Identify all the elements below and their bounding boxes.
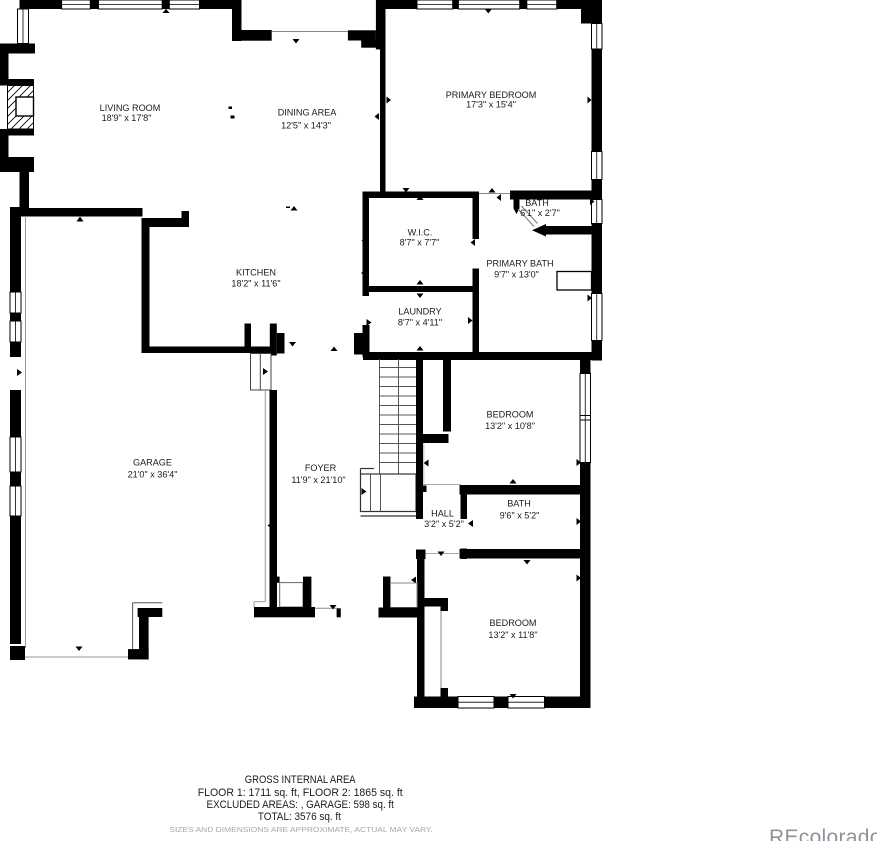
svg-text:8'7" x 7'7": 8'7" x 7'7" — [400, 237, 440, 247]
svg-text:6'1" x 2'7": 6'1" x 2'7" — [520, 208, 560, 218]
svg-text:KITCHEN: KITCHEN — [236, 267, 276, 277]
svg-text:18'2" x 11'6": 18'2" x 11'6" — [231, 278, 280, 288]
svg-text:BATH: BATH — [507, 498, 531, 508]
svg-text:FLOOR 1: 1711 sq. ft, FLOOR 2:: FLOOR 1: 1711 sq. ft, FLOOR 2: 1865 sq. … — [198, 787, 404, 799]
svg-text:PRIMARY BEDROOM: PRIMARY BEDROOM — [446, 90, 537, 100]
svg-text:BEDROOM: BEDROOM — [490, 618, 537, 628]
svg-text:DINING AREA: DINING AREA — [278, 108, 338, 118]
svg-text:BATH: BATH — [525, 198, 549, 208]
svg-text:W.I.C.: W.I.C. — [408, 227, 433, 237]
svg-text:13'2" x 10'8": 13'2" x 10'8" — [485, 421, 535, 431]
svg-text:12'5" x 14'3": 12'5" x 14'3" — [281, 121, 331, 131]
svg-text:8'7" x 4'11": 8'7" x 4'11" — [398, 318, 442, 328]
svg-text:GARAGE: GARAGE — [133, 457, 172, 467]
svg-text:9'6" x 5'2": 9'6" x 5'2" — [500, 511, 540, 521]
svg-text:9'7" x 13'0": 9'7" x 13'0" — [494, 270, 539, 280]
svg-text:LIVING ROOM: LIVING ROOM — [100, 103, 161, 113]
svg-text:3'2" x 5'2": 3'2" x 5'2" — [424, 519, 464, 529]
svg-text:18'9" x 17'8": 18'9" x 17'8" — [102, 113, 152, 123]
svg-text:13'2" x 11'8": 13'2" x 11'8" — [488, 630, 537, 640]
svg-text:FOYER: FOYER — [305, 463, 337, 473]
svg-text:REcolorado: REcolorado — [769, 826, 877, 841]
svg-text:EXCLUDED AREAS: , GARAGE: 598: EXCLUDED AREAS: , GARAGE: 598 sq. ft — [207, 799, 395, 811]
svg-text:HALL: HALL — [431, 509, 454, 519]
svg-text:TOTAL: 3576 sq. ft: TOTAL: 3576 sq. ft — [258, 811, 342, 823]
svg-text:11'9" x 21'10": 11'9" x 21'10" — [291, 475, 345, 485]
svg-text:17'3" x 15'4": 17'3" x 15'4" — [466, 100, 516, 110]
svg-text:GROSS INTERNAL AREA: GROSS INTERNAL AREA — [245, 774, 356, 786]
svg-text:LAUNDRY: LAUNDRY — [398, 307, 441, 317]
svg-text:SIZES AND DIMENSIONS ARE APPRO: SIZES AND DIMENSIONS ARE APPROXIMATE, AC… — [169, 825, 432, 834]
svg-text:21'0" x 36'4": 21'0" x 36'4" — [128, 469, 178, 479]
svg-text:BEDROOM: BEDROOM — [487, 410, 534, 420]
svg-text:PRIMARY BATH: PRIMARY BATH — [486, 259, 553, 269]
